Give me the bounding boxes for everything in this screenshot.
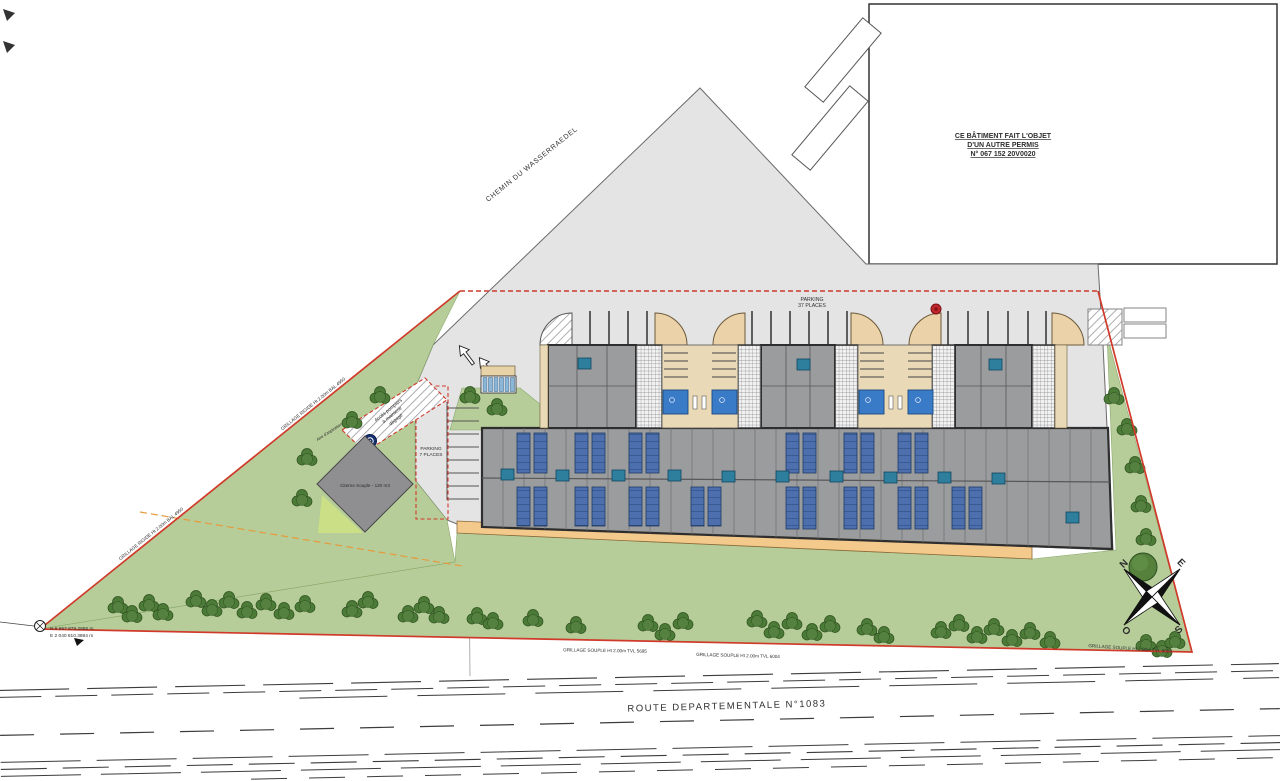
permit-note-line3: N° 067 152 20V0020 bbox=[970, 150, 1035, 158]
permit-note-line2: D'UN AUTRE PERMIS bbox=[967, 142, 1039, 149]
building bbox=[482, 345, 1112, 552]
coord-east: E 2 040 810.3884 m bbox=[50, 633, 93, 639]
parking-west-label1: PARKING bbox=[420, 446, 442, 452]
site-plan: ROUTE DEPARTEMENTALE N°1083 CE BÂTIMENT … bbox=[0, 0, 1280, 781]
site-plan-drawing: ROUTE DEPARTEMENTALE N°1083 CE BÂTIMENT … bbox=[0, 0, 1280, 781]
coord-north: N 6 857 879.2886 m bbox=[50, 626, 93, 632]
permit-note-line1: CE BÂTIMENT FAIT L'OBJET bbox=[955, 131, 1052, 140]
bike-shelter bbox=[481, 366, 516, 393]
hydrant-icon bbox=[931, 304, 941, 314]
parking-main-label2: 37 PLACES bbox=[798, 303, 826, 309]
parking-west-label2: 7 PLACES bbox=[420, 452, 443, 458]
permit-building-box: CE BÂTIMENT FAIT L'OBJET D'UN AUTRE PERM… bbox=[869, 4, 1277, 264]
cistern-label: Citerne Souple - 120 m3 bbox=[340, 483, 390, 488]
